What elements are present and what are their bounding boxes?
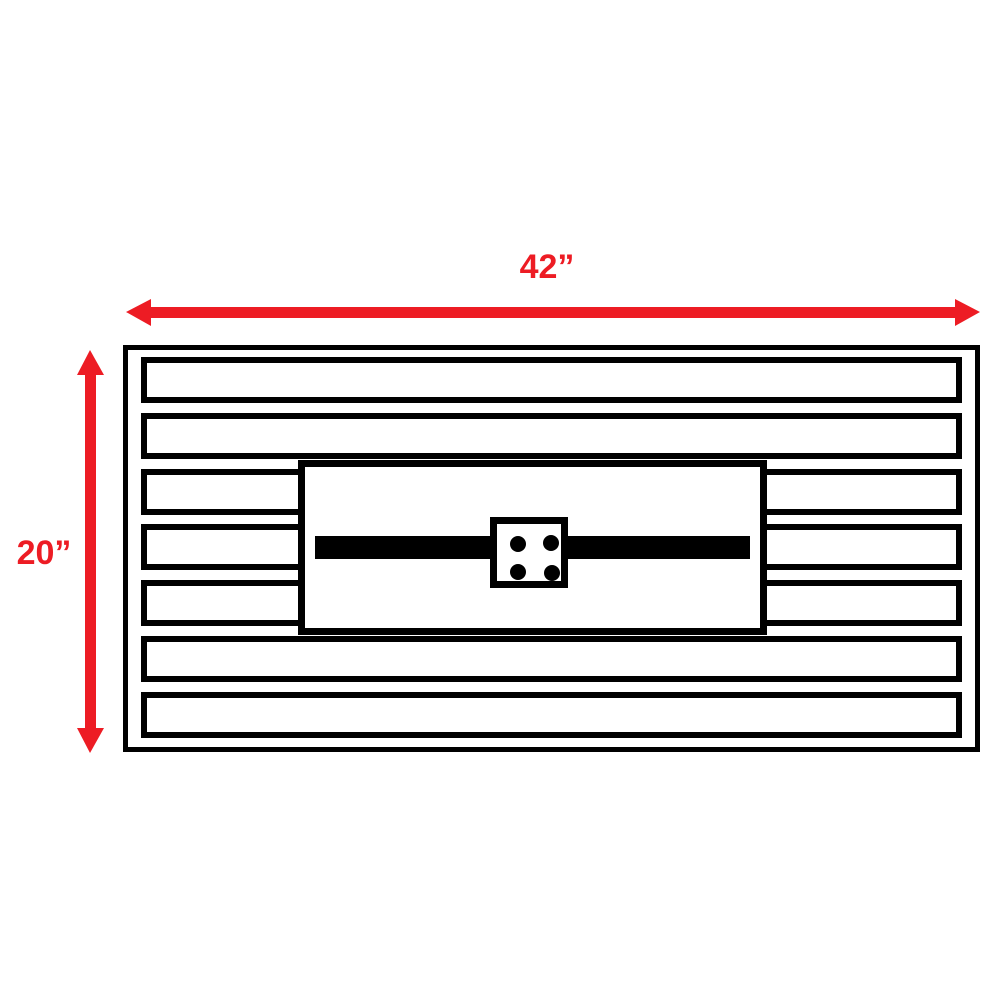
height-arrow-shaft xyxy=(85,370,96,733)
width-dimension-arrow xyxy=(126,299,980,326)
width-dimension-label: 42” xyxy=(497,250,597,284)
dimension-diagram: 42” 20” xyxy=(0,0,1000,1000)
arrowhead-right xyxy=(955,299,980,326)
burner-hole xyxy=(544,565,560,581)
burner-hole xyxy=(543,535,559,551)
slat xyxy=(141,413,962,459)
height-dimension-arrow xyxy=(77,350,104,753)
burner-hole xyxy=(510,536,526,552)
arrowhead-down xyxy=(77,728,104,753)
height-dimension-label: 20” xyxy=(0,536,88,570)
burner-hole xyxy=(510,564,526,580)
slat xyxy=(141,692,962,738)
slat xyxy=(141,357,962,403)
burner-plate xyxy=(490,517,568,588)
slat xyxy=(141,636,962,682)
width-arrow-shaft xyxy=(146,307,960,318)
